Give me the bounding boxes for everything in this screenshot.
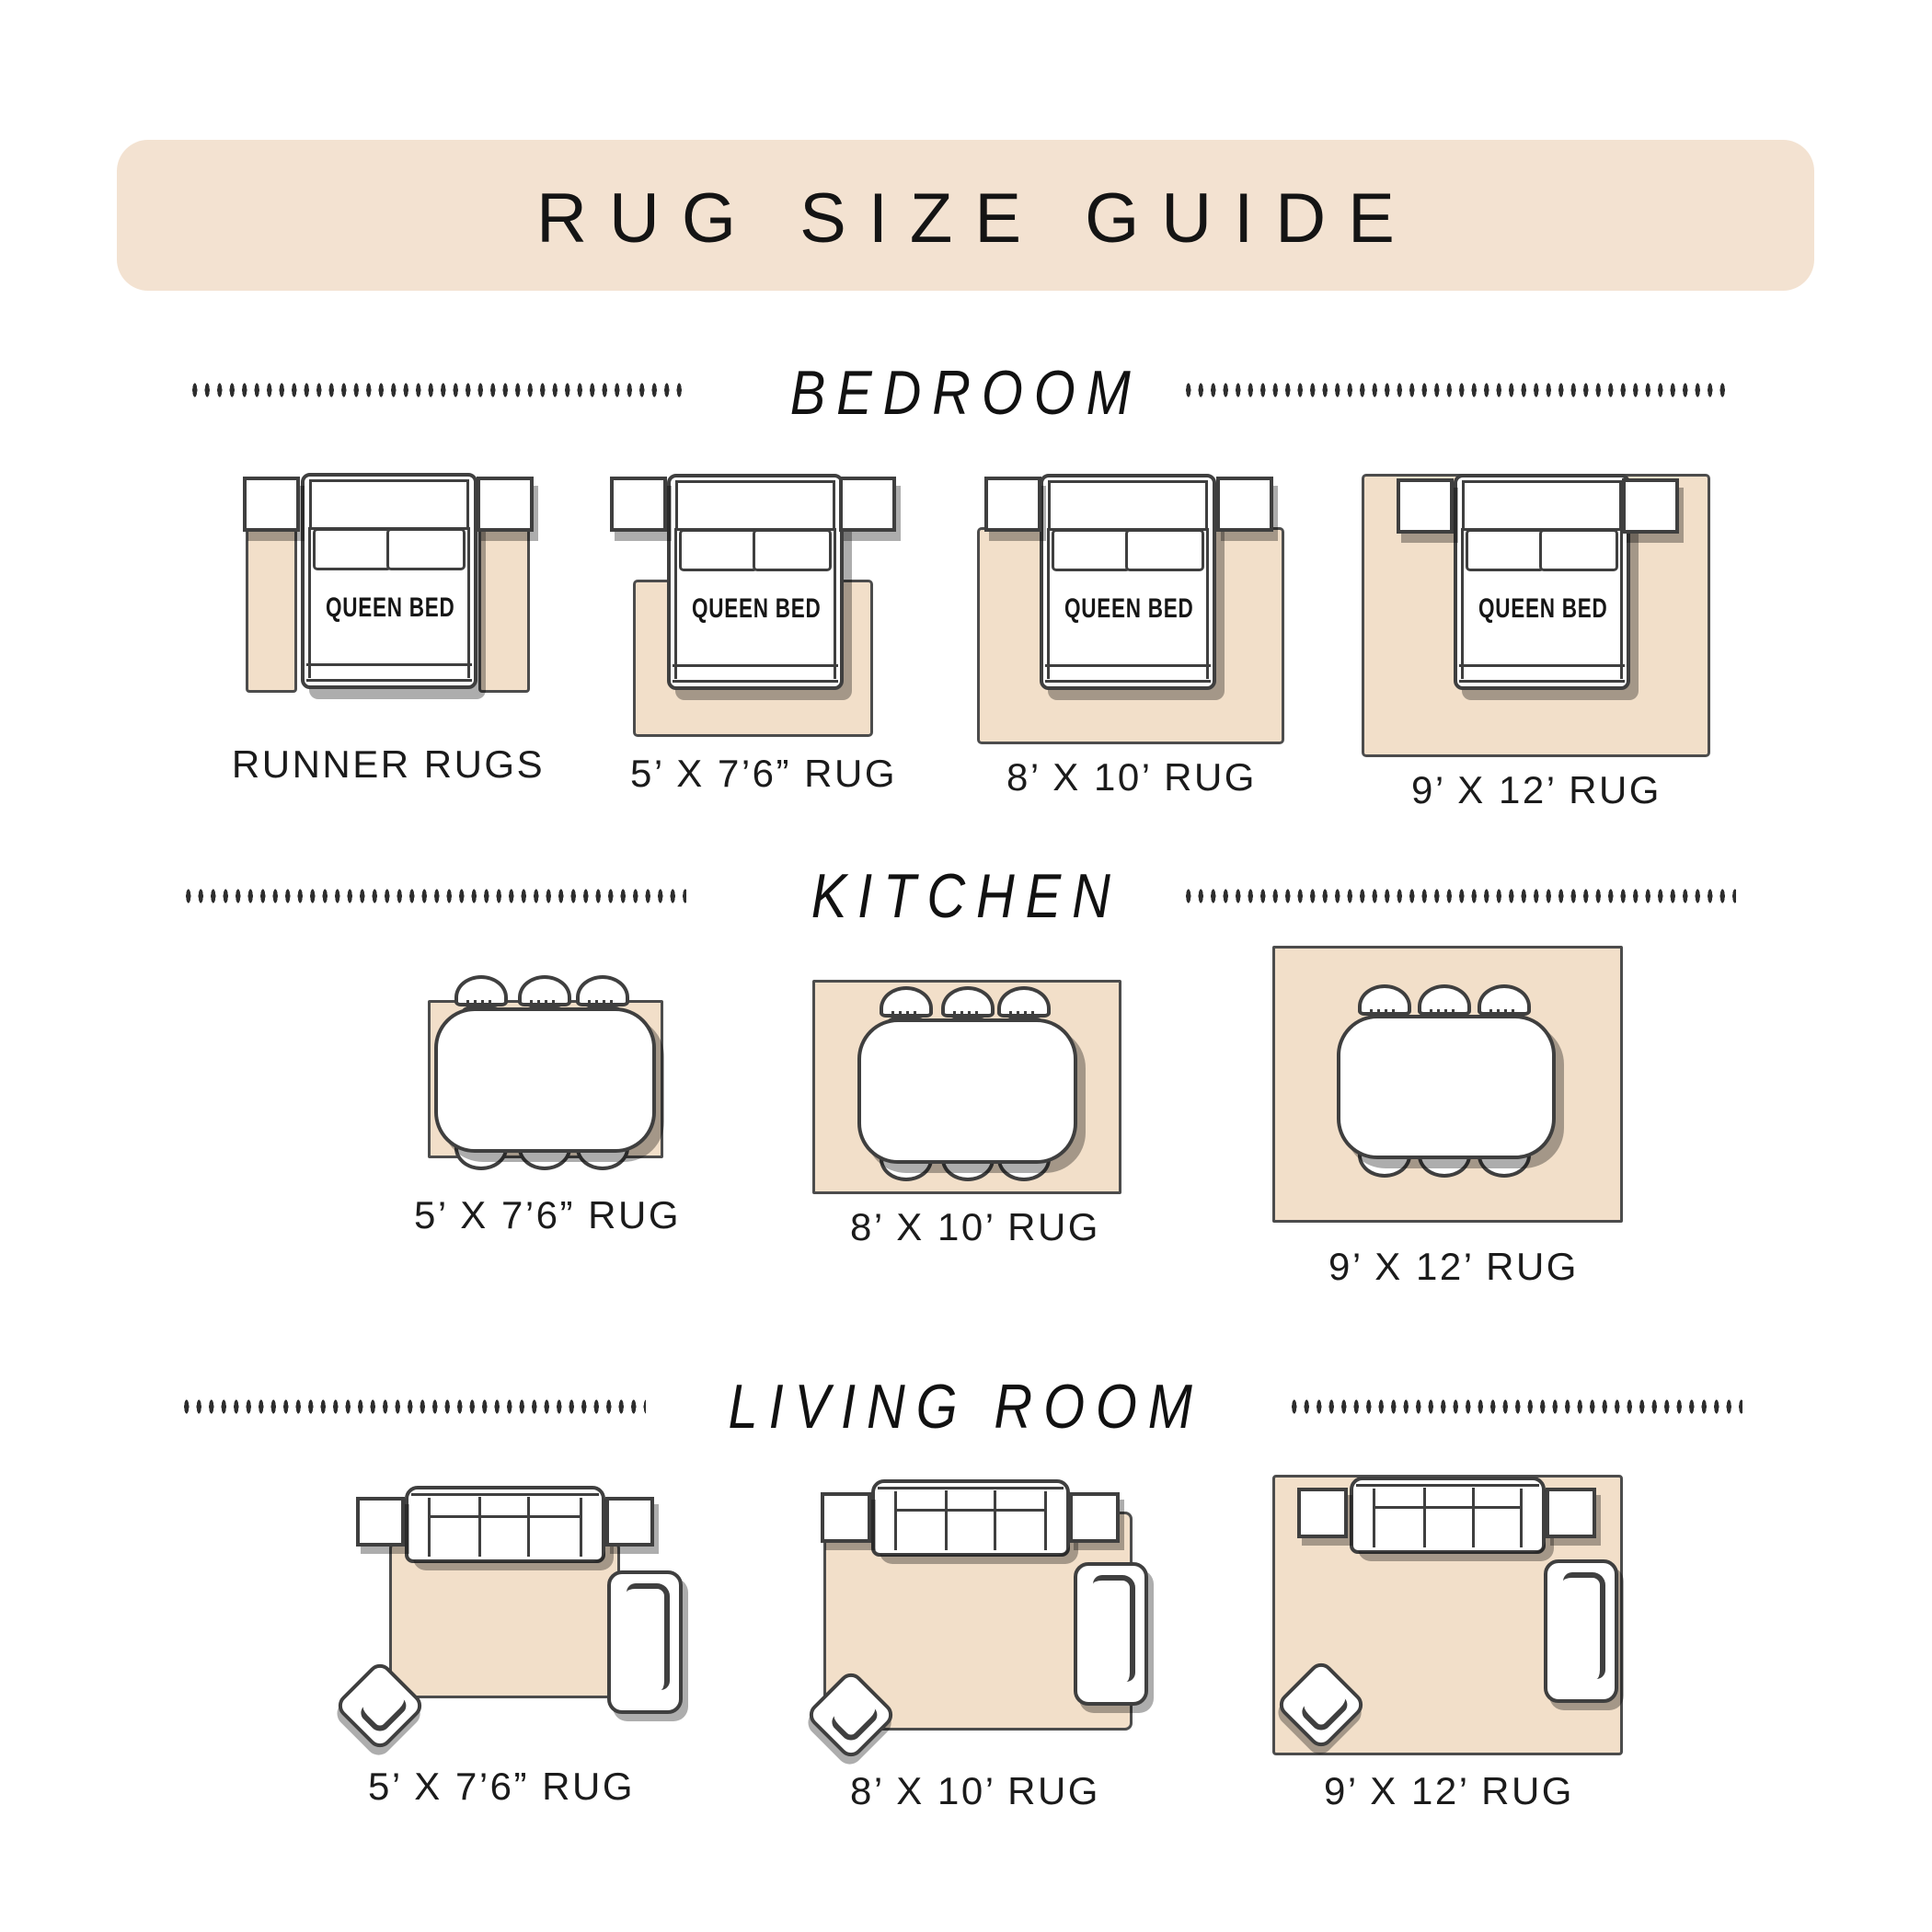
side-table-left — [356, 1497, 405, 1547]
divider-dots-right — [1288, 1399, 1742, 1414]
nightstand-right — [1216, 477, 1273, 532]
section-title-bedroom-text: BEDROOM — [790, 361, 1142, 425]
diagram-label: 8’ X 10’ RUG — [975, 755, 1288, 799]
sofa-arm-line-left — [894, 1491, 897, 1550]
bedroom-9x12-rug-diagram: QUEEN BED 9’ X 12’ RUG — [1352, 465, 1720, 814]
sofa-seat-line — [895, 1509, 1046, 1512]
queen-bed: QUEEN BED — [1454, 474, 1630, 690]
pillow-right — [386, 528, 466, 570]
sofa-seat-line — [429, 1515, 581, 1518]
sofa-cushion-divider — [527, 1497, 530, 1557]
bedroom-runner-rugs-diagram: QUEEN BED RUNNER RUGS — [230, 465, 546, 805]
section-title-living-room-text: LIVING ROOM — [729, 1374, 1203, 1439]
bed-headboard — [309, 479, 469, 530]
pillow-left — [1052, 529, 1131, 571]
kitchen-9x12-rug-diagram: 9’ X 12’ RUG — [1270, 938, 1638, 1297]
divider-dots-right — [1182, 383, 1731, 397]
side-table-right — [1546, 1488, 1596, 1538]
side-table-right — [1069, 1492, 1120, 1543]
side-table-right — [605, 1497, 654, 1547]
queen-bed: QUEEN BED — [301, 473, 477, 689]
armchair — [607, 1570, 683, 1714]
diagram-label: 8’ X 10’ RUG — [791, 1205, 1159, 1249]
bed-headboard — [1048, 480, 1208, 531]
side-table-left — [1297, 1488, 1348, 1538]
section-title-kitchen: KITCHEN — [0, 864, 1932, 946]
diagram-label: RUNNER RUGS — [230, 742, 546, 787]
sofa — [405, 1486, 605, 1563]
sofa-arm-line-left — [1373, 1489, 1375, 1547]
sofa-arm-line-right — [1520, 1489, 1523, 1547]
nightstand-left — [984, 477, 1041, 532]
diagram-label: 8’ X 10’ RUG — [764, 1769, 1187, 1813]
armchair — [1074, 1562, 1148, 1706]
kitchen-table — [857, 1018, 1077, 1164]
nightstand-left — [1397, 478, 1454, 534]
living-room-9x12-rug-diagram: 9’ X 12’ RUG — [1260, 1454, 1684, 1840]
queen-bed-label: QUEEN BED — [1478, 593, 1605, 625]
kitchen-table — [434, 1007, 656, 1153]
queen-bed: QUEEN BED — [667, 474, 844, 690]
section-title-living-room: LIVING ROOM — [0, 1374, 1932, 1456]
rug — [389, 1541, 620, 1698]
bed-headboard — [1462, 480, 1622, 531]
kitchen-8x10-rug-diagram: 8’ X 10’ RUG — [791, 957, 1159, 1260]
armchair — [1544, 1559, 1618, 1703]
pillow-right — [753, 529, 832, 571]
title-banner: RUG SIZE GUIDE — [117, 140, 1814, 291]
nightstand-right — [477, 477, 534, 532]
queen-bed: QUEEN BED — [1040, 474, 1216, 690]
sofa-seat-line — [1374, 1506, 1522, 1509]
nightstand-left — [610, 477, 667, 532]
sofa — [871, 1479, 1070, 1557]
divider-dots-left — [182, 889, 686, 903]
nightstand-left — [243, 477, 300, 532]
pillow-right — [1539, 529, 1618, 571]
sofa-arm-line-right — [580, 1498, 582, 1557]
sofa-arm-line-left — [428, 1498, 431, 1557]
side-table-left — [821, 1492, 871, 1543]
runner-rug-left — [246, 520, 297, 693]
sofa-cushion-divider — [945, 1490, 948, 1550]
page-title: RUG SIZE GUIDE — [117, 178, 1814, 259]
divider-dots-right — [1182, 889, 1736, 903]
divider-dots-left — [180, 1399, 646, 1414]
pillow-left — [1466, 529, 1545, 571]
sofa-cushion-divider — [994, 1490, 996, 1550]
sofa-arm-line-right — [1044, 1491, 1047, 1550]
bed-footboard — [673, 664, 838, 683]
rug-size-guide-infographic: RUG SIZE GUIDE BEDROOM QUEEN BED RUNNER … — [0, 0, 1932, 1932]
bed-footboard — [1459, 664, 1625, 683]
section-title-kitchen-text: KITCHEN — [811, 864, 1121, 928]
bed-footboard — [1045, 664, 1211, 683]
diagram-label: 9’ X 12’ RUG — [1352, 768, 1720, 812]
bedroom-8x10-rug-diagram: QUEEN BED 8’ X 10’ RUG — [975, 465, 1288, 805]
sofa-cushion-divider — [478, 1497, 481, 1557]
kitchen-5x7-6-rug-diagram: 5’ X 7’6” RUG — [396, 957, 699, 1251]
pillow-right — [1125, 529, 1204, 571]
living-room-8x10-rug-diagram: 8’ X 10’ RUG — [764, 1463, 1187, 1840]
living-room-5x7-6-rug-diagram: 5’ X 7’6” RUG — [258, 1463, 681, 1840]
diagram-label: 9’ X 12’ RUG — [1270, 1245, 1638, 1289]
diagram-label: 5’ X 7’6” RUG — [290, 1765, 713, 1809]
diagram-label: 5’ X 7’6” RUG — [607, 752, 920, 796]
bed-footboard — [306, 663, 472, 682]
divider-dots-left — [189, 383, 685, 397]
runner-rug-right — [478, 520, 530, 693]
sofa-cushion-divider — [1423, 1488, 1426, 1547]
bedroom-5x7-6-rug-diagram: QUEEN BED 5’ X 7’6” RUG — [607, 465, 920, 805]
nightstand-right — [839, 477, 896, 532]
diagram-label: 5’ X 7’6” RUG — [396, 1193, 699, 1237]
queen-bed-label: QUEEN BED — [1064, 593, 1191, 625]
sofa — [1350, 1477, 1546, 1554]
bed-headboard — [675, 480, 835, 531]
queen-bed-label: QUEEN BED — [692, 593, 819, 625]
kitchen-table — [1337, 1015, 1556, 1159]
pillow-left — [679, 529, 758, 571]
nightstand-right — [1622, 478, 1679, 534]
pillow-left — [313, 528, 392, 570]
section-title-bedroom: BEDROOM — [0, 361, 1932, 443]
sofa-cushion-divider — [1472, 1488, 1475, 1547]
queen-bed-label: QUEEN BED — [326, 592, 453, 624]
diagram-label: 9’ X 12’ RUG — [1237, 1769, 1661, 1813]
